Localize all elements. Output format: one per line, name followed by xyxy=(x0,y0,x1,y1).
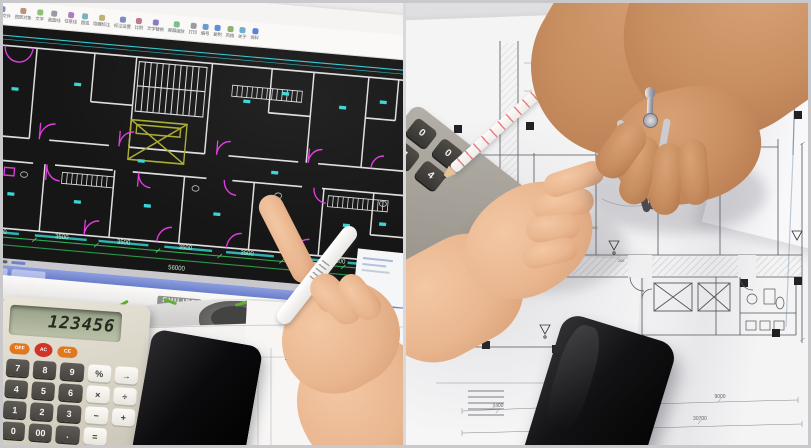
tool-icon xyxy=(20,8,27,15)
desk-calculator: 123456 OFF AC CE 7 8 9 % → 4 5 6 × ÷ 1 2… xyxy=(3,296,151,445)
monitor: 图形文件 图层对象 文字 画直线 任意线 圆弧 隐藏标注 标注设置 比例 文字替… xyxy=(3,3,403,313)
paper-slip-text xyxy=(363,257,393,262)
svg-text:2400: 2400 xyxy=(492,403,504,409)
tool-icon xyxy=(153,19,160,26)
toolbar-item: 资料 xyxy=(250,28,259,41)
calculator-key: 4 xyxy=(414,159,447,192)
calculator-key-ac: AC xyxy=(34,342,53,357)
svg-text:9000: 9000 xyxy=(714,394,725,400)
calculator-key: 9 xyxy=(60,362,84,381)
calculator-key: × xyxy=(86,385,110,404)
toolbar-item: 任意线 xyxy=(64,12,78,25)
calculator-key: 7 xyxy=(6,358,30,377)
toolbar-item: 圆弧 xyxy=(81,13,90,26)
toolbar-item: 比例 xyxy=(134,18,143,31)
toolbar-item: 图层对象 xyxy=(14,7,32,20)
toolbar-item: 风格 xyxy=(225,26,234,39)
calculator-key: % xyxy=(87,364,111,383)
elevator-shafts xyxy=(654,283,730,311)
tool-icon xyxy=(51,10,58,17)
toolbar-item: 屏幕缩放 xyxy=(168,21,186,34)
toolbar-item: 编号 xyxy=(201,24,210,37)
status-text-blur xyxy=(11,261,25,265)
calculator-key: = xyxy=(83,427,107,445)
tool-icon xyxy=(190,23,197,30)
toolbar-item: 文字替换 xyxy=(147,19,165,32)
calculator-display-value: 123456 xyxy=(47,312,116,337)
calculator-key: → xyxy=(114,366,138,385)
tool-icon xyxy=(215,25,222,32)
photo-left-cad-workstation: 图形文件 图层对象 文字 画直线 任意线 圆弧 隐藏标注 标注设置 比例 文字替… xyxy=(3,3,403,445)
calculator-key: + xyxy=(111,408,135,427)
toolbar-item: 图形文件 xyxy=(3,5,11,18)
calculator-key: 0 xyxy=(406,117,438,150)
calculator-key: − xyxy=(84,406,108,425)
smartphone xyxy=(130,328,263,445)
tool-icon xyxy=(202,24,209,31)
calculator-display: 123456 xyxy=(9,305,123,343)
calculator-key: 00 xyxy=(28,423,52,442)
calculator-key-off: OFF xyxy=(9,342,30,354)
calculator-key: 3 xyxy=(57,404,81,423)
tool-icon xyxy=(3,6,6,13)
tool-icon xyxy=(136,18,143,25)
paper-slip-text xyxy=(362,263,386,267)
svg-text:30700: 30700 xyxy=(693,416,707,422)
toolbar-item: 画直线 xyxy=(47,10,61,23)
photo-collage: 图形文件 图层对象 文字 画直线 任意线 圆弧 隐藏标注 标注设置 比例 文字替… xyxy=(0,0,811,448)
toolbar-item: 复制 xyxy=(213,25,222,38)
calculator-key: . xyxy=(56,425,80,444)
calculator-key: 6 xyxy=(58,383,82,402)
calculator-keypad: 7 8 9 % → 4 5 6 × ÷ 1 2 3 − + 0 00 . = xyxy=(3,358,139,445)
tool-icon xyxy=(82,13,89,20)
status-text-blur xyxy=(3,260,8,263)
calculator-key: ÷ xyxy=(113,387,137,406)
photo-right-blueprint-work: 2400 9000 30700 2000 520 200 0 0 1 4 7 xyxy=(406,3,808,445)
toolbar-item: 标注设置 xyxy=(114,16,132,29)
toolbar-item: 关于 xyxy=(238,27,247,40)
tool-icon xyxy=(227,26,234,33)
calculator-key-blank xyxy=(110,429,134,445)
calculator-key: 5 xyxy=(31,381,55,400)
calculator-key: 2 xyxy=(30,402,54,421)
toolbar-item: 隐藏标注 xyxy=(93,14,111,27)
tool-icon xyxy=(99,15,106,22)
calculator-key: 4 xyxy=(4,379,28,398)
calculator-key: 1 xyxy=(3,400,27,419)
toolbar-item: 打印 xyxy=(188,22,197,35)
tool-icon xyxy=(173,21,180,28)
calculator-key-ce: CE xyxy=(57,345,78,357)
calculator-key: 8 xyxy=(33,360,57,379)
toolbar-item: 文字 xyxy=(35,9,44,22)
calculator-key: 0 xyxy=(3,421,26,440)
tool-icon xyxy=(120,16,127,23)
compass-hinge xyxy=(643,113,658,128)
paper-slip-text xyxy=(362,269,390,274)
tool-icon xyxy=(239,27,246,34)
tool-icon xyxy=(37,9,44,16)
finger xyxy=(678,138,711,206)
tool-icon xyxy=(68,12,75,19)
tool-icon xyxy=(252,28,259,35)
